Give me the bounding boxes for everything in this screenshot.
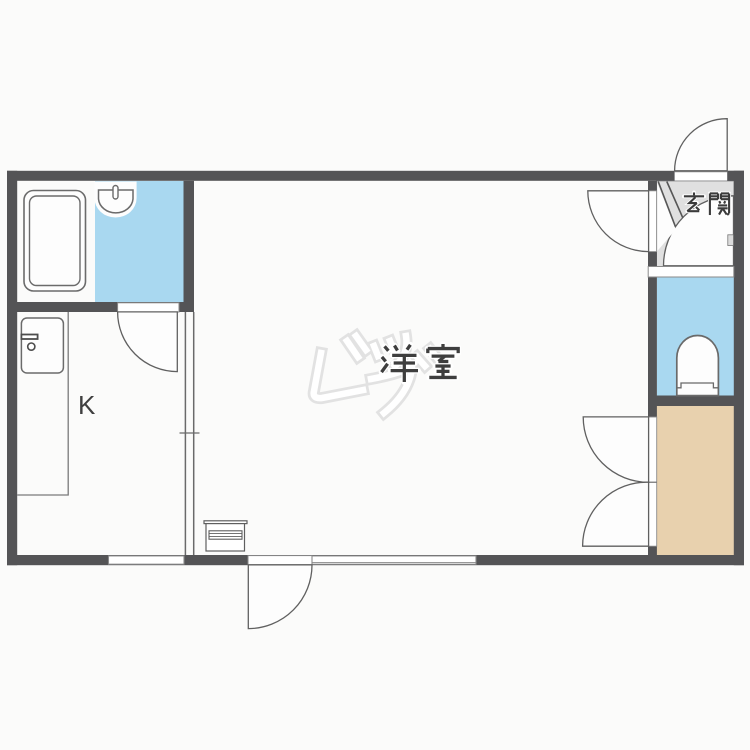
svg-text:K: K xyxy=(78,390,96,420)
